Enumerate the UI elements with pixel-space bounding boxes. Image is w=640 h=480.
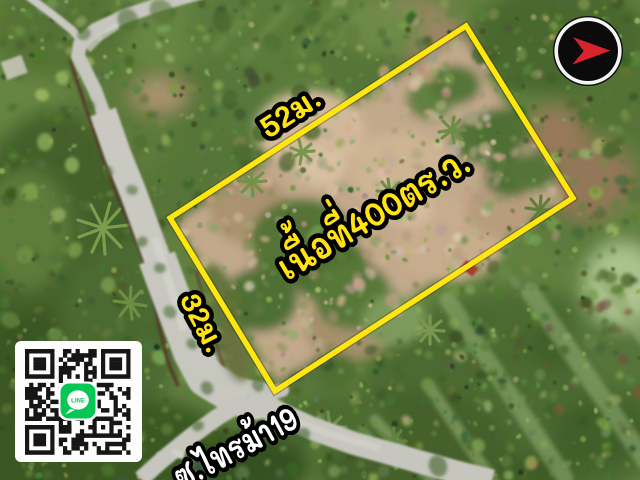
svg-text:LINE: LINE — [71, 399, 85, 405]
